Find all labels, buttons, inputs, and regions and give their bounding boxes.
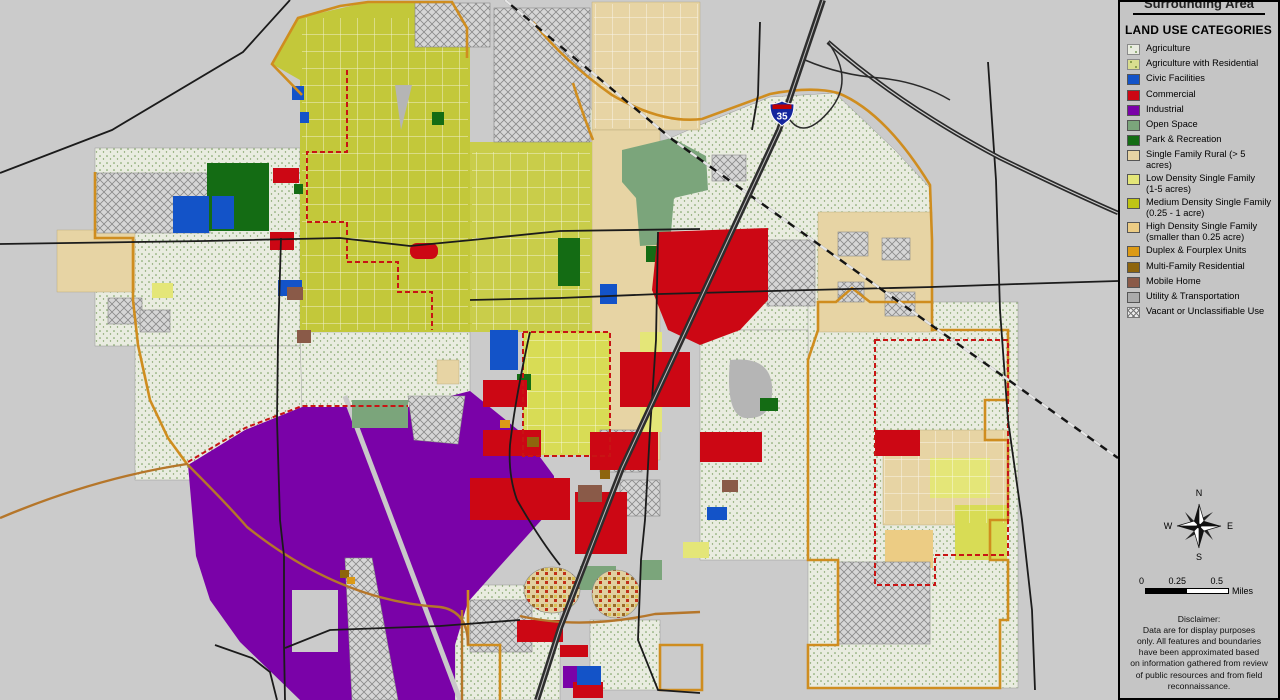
scale-bar-block: 0 0.25 0.5 Miles bbox=[1125, 576, 1273, 596]
legend-item-label: Open Space bbox=[1146, 119, 1198, 129]
legend-swatch bbox=[1127, 292, 1140, 303]
legend-swatch bbox=[1127, 74, 1140, 85]
legend-title: LAND USE CATEGORIES bbox=[1125, 23, 1273, 37]
legend-item-13: Mobile Home bbox=[1125, 276, 1273, 288]
legend-swatch bbox=[1127, 246, 1140, 257]
legend-item-0: Agriculture bbox=[1125, 43, 1273, 55]
legend-swatch bbox=[1127, 120, 1140, 131]
legend-item-label: Single Family Rural (> 5 acres) bbox=[1146, 149, 1273, 170]
legend-item-11: Duplex & Fourplex Units bbox=[1125, 245, 1273, 257]
legend-item-label: Agriculture bbox=[1146, 43, 1190, 53]
legend-item-label: Utility & Transportation bbox=[1146, 291, 1240, 301]
legend-swatch bbox=[1127, 222, 1140, 233]
legend-clipped-header: Surrounding Area bbox=[1125, 2, 1273, 11]
legend-item-label: Civic Facilities bbox=[1146, 73, 1205, 83]
legend-item-5: Open Space bbox=[1125, 119, 1273, 131]
legend-swatch bbox=[1127, 59, 1140, 70]
legend-swatch bbox=[1127, 44, 1140, 55]
compass-rose-icon: N S W E bbox=[1160, 486, 1238, 562]
compass-east-label: E bbox=[1227, 521, 1233, 531]
legend-panel: Surrounding Area LAND USE CATEGORIES Agr… bbox=[1118, 0, 1280, 700]
legend-swatch bbox=[1127, 90, 1140, 101]
legend-item-15: Vacant or Unclassifiable Use bbox=[1125, 306, 1273, 318]
legend-item-6: Park & Recreation bbox=[1125, 134, 1273, 146]
legend-swatch bbox=[1127, 174, 1140, 185]
legend-swatch bbox=[1127, 150, 1140, 161]
legend-item-label: Vacant or Unclassifiable Use bbox=[1146, 306, 1264, 316]
legend-item-9: Medium Density Single Family (0.25 - 1 a… bbox=[1125, 197, 1273, 218]
legend-item-label: Commercial bbox=[1146, 89, 1196, 99]
legend-item-label: High Density Single Family (smaller than… bbox=[1146, 221, 1257, 242]
compass-north-label: N bbox=[1196, 488, 1203, 498]
compass-block: N S W E bbox=[1125, 486, 1273, 562]
interstate-shield-number: 35 bbox=[776, 112, 788, 123]
legend-swatch bbox=[1127, 277, 1140, 288]
legend-item-1: Agriculture with Residential bbox=[1125, 58, 1273, 70]
scale-bar bbox=[1145, 588, 1229, 594]
legend-swatch bbox=[1127, 262, 1140, 273]
legend-item-7: Single Family Rural (> 5 acres) bbox=[1125, 149, 1273, 170]
compass-west-label: W bbox=[1164, 521, 1173, 531]
legend-item-label: Mobile Home bbox=[1146, 276, 1201, 286]
legend-item-10: High Density Single Family (smaller than… bbox=[1125, 221, 1273, 242]
compass-south-label: S bbox=[1196, 552, 1202, 562]
map-svg: 35 bbox=[0, 0, 1118, 700]
legend-divider bbox=[1133, 13, 1265, 15]
legend-item-label: Industrial bbox=[1146, 104, 1184, 114]
scale-tick-025: 0.25 bbox=[1168, 576, 1186, 586]
legend-item-label: Multi-Family Residential bbox=[1146, 261, 1245, 271]
legend-item-label: Park & Recreation bbox=[1146, 134, 1221, 144]
legend-swatch bbox=[1127, 105, 1140, 116]
legend-swatch bbox=[1127, 307, 1140, 318]
legend-item-12: Multi-Family Residential bbox=[1125, 261, 1273, 273]
legend-swatch bbox=[1127, 135, 1140, 146]
map-canvas: 35 bbox=[0, 0, 1118, 700]
scale-unit-label: Miles bbox=[1232, 586, 1253, 596]
disclaimer-text: Disclaimer: Data are for display purpose… bbox=[1125, 614, 1273, 692]
legend-item-label: Agriculture with Residential bbox=[1146, 58, 1258, 68]
scale-tick-0: 0 bbox=[1139, 576, 1144, 586]
legend-item-2: Civic Facilities bbox=[1125, 73, 1273, 85]
legend-item-14: Utility & Transportation bbox=[1125, 291, 1273, 303]
legend-swatch bbox=[1127, 198, 1140, 209]
legend-item-label: Low Density Single Family (1-5 acres) bbox=[1146, 173, 1255, 194]
legend-item-4: Industrial bbox=[1125, 104, 1273, 116]
scale-tick-05: 0.5 bbox=[1210, 576, 1223, 586]
legend-item-8: Low Density Single Family (1-5 acres) bbox=[1125, 173, 1273, 194]
legend-item-label: Medium Density Single Family (0.25 - 1 a… bbox=[1146, 197, 1271, 218]
legend-item-list: Agriculture Agriculture with Residential… bbox=[1125, 43, 1273, 321]
landuse-map-page: 35 Surrounding Area LAND USE CATEGORIES … bbox=[0, 0, 1280, 700]
legend-item-label: Duplex & Fourplex Units bbox=[1146, 245, 1246, 255]
legend-item-3: Commercial bbox=[1125, 89, 1273, 101]
